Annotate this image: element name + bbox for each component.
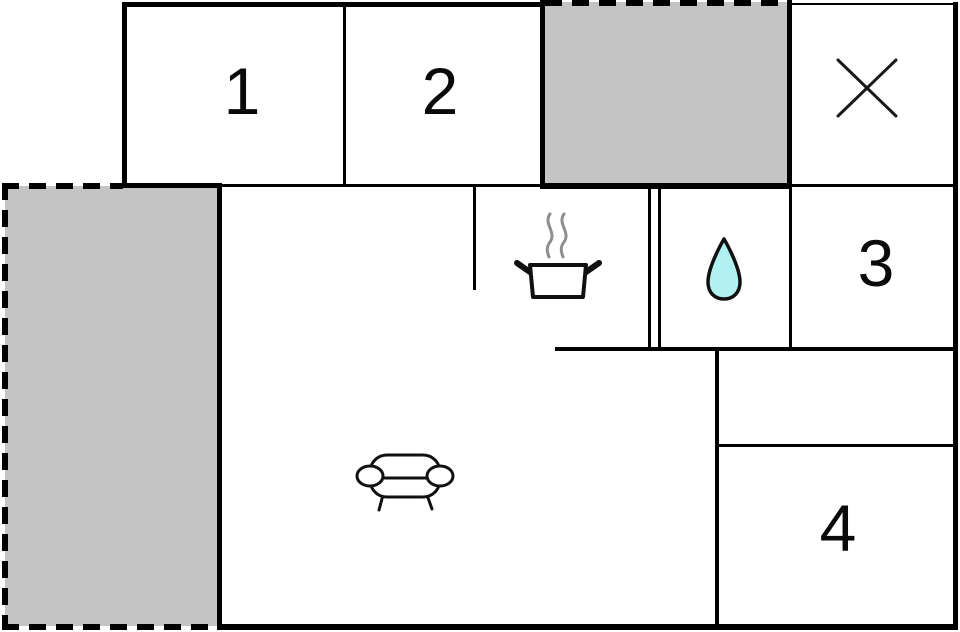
pot-handle-right bbox=[586, 263, 599, 272]
upper-rooms-bottom-wall bbox=[222, 184, 543, 187]
water-drop-shape bbox=[708, 239, 740, 299]
water-drop-icon bbox=[705, 236, 743, 302]
steam-line bbox=[561, 214, 566, 257]
room1-room2-divider-wall bbox=[343, 5, 346, 186]
steam-line bbox=[547, 214, 552, 257]
room1-left-outer-wall bbox=[122, 2, 127, 188]
terrace-left-top-dashed-border bbox=[2, 183, 123, 189]
living-right-wall bbox=[715, 347, 719, 627]
terrace-left-bottom-dashed-border bbox=[2, 624, 218, 630]
xroom-bottom-wall bbox=[790, 184, 955, 187]
kitchen-partial-wall bbox=[473, 187, 476, 290]
terrace-join-outer-wall bbox=[122, 183, 222, 188]
room-2-label: 2 bbox=[408, 55, 472, 127]
terrace-left-area bbox=[5, 186, 218, 626]
sofa-armrest-right bbox=[427, 466, 453, 486]
bathroom-room3-wall bbox=[789, 187, 792, 349]
xroom-top-wall bbox=[790, 3, 955, 5]
pot-handle-left bbox=[517, 263, 530, 272]
room4-top-wall bbox=[715, 444, 955, 447]
sofa-icon bbox=[355, 449, 455, 513]
right-outer-wall bbox=[953, 2, 958, 630]
kitchen-bottom-wall bbox=[555, 347, 955, 351]
floor-plan: 1 2 3 4 bbox=[0, 0, 960, 632]
kitchen-bathroom-wall-outer bbox=[648, 189, 651, 349]
terrace-top-area bbox=[543, 2, 789, 186]
cooking-pot-icon bbox=[513, 208, 603, 302]
room-4-label: 4 bbox=[806, 492, 870, 564]
x-marker-icon bbox=[835, 57, 899, 119]
terrace-top-left-wall bbox=[540, 0, 545, 189]
bottom-outer-wall bbox=[217, 624, 958, 630]
terrace-top-right-wall bbox=[787, 0, 792, 189]
terrace-left-side-dashed-border bbox=[2, 183, 8, 630]
room-3-label: 3 bbox=[844, 227, 908, 299]
terrace-top-dashed-border bbox=[545, 0, 788, 6]
sofa-armrest-left bbox=[357, 466, 383, 486]
pot-body bbox=[530, 265, 586, 297]
top-outer-wall bbox=[122, 2, 543, 7]
living-left-outer-wall bbox=[217, 183, 222, 630]
kitchen-bathroom-wall-inner bbox=[658, 189, 661, 349]
terrace-top-bottom-wall bbox=[540, 183, 792, 189]
room-1-label: 1 bbox=[210, 55, 274, 127]
